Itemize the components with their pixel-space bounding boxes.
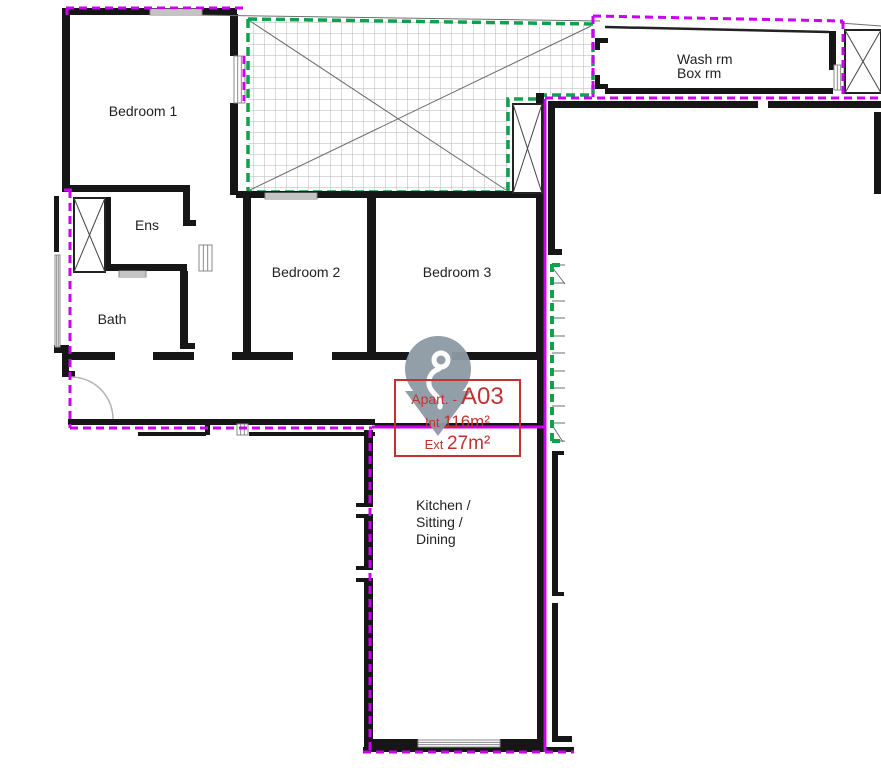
apartment-marker-box[interactable]: Apart. - A03 Int 116m² Ext 27m² bbox=[394, 379, 521, 457]
internal-area-line: Int 116m² bbox=[396, 412, 519, 433]
ext-value: 27m² bbox=[447, 433, 490, 454]
int-value: 116m² bbox=[443, 412, 490, 431]
apartment-separator: - bbox=[452, 391, 461, 407]
apartment-unit: A03 bbox=[461, 383, 504, 410]
ext-label: Ext bbox=[425, 437, 447, 452]
int-label: Int bbox=[425, 415, 443, 430]
apartment-id-line: Apart. - A03 bbox=[396, 384, 519, 412]
external-area-line: Ext 27m² bbox=[396, 433, 519, 456]
floorplan-canvas: Bedroom 1EnsBathBedroom 2Bedroom 3Wash r… bbox=[0, 0, 881, 768]
apartment-prefix: Apart. bbox=[411, 391, 448, 407]
